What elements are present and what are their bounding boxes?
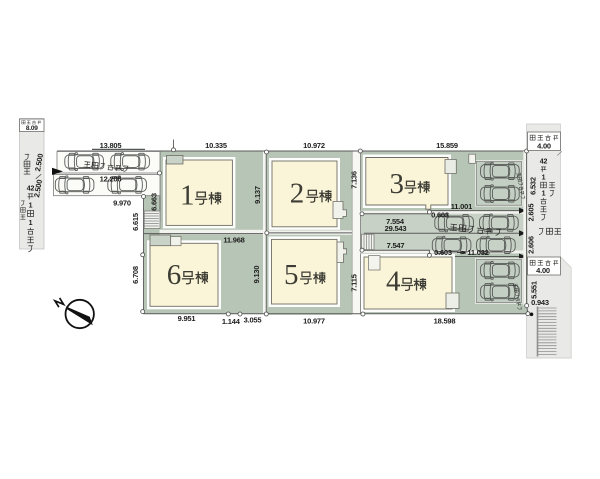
svg-text:15.859: 15.859 [436, 141, 458, 150]
svg-text:1: 1 [180, 180, 195, 212]
svg-text:11.968: 11.968 [223, 235, 244, 244]
svg-text:0.603: 0.603 [434, 248, 452, 257]
svg-text:0.603: 0.603 [431, 210, 449, 219]
svg-text:18.598: 18.598 [434, 317, 456, 326]
svg-text:4.00: 4.00 [536, 266, 550, 275]
svg-text:4.00: 4.00 [537, 142, 551, 151]
svg-text:1: 1 [542, 175, 546, 182]
svg-text:2.605: 2.605 [527, 204, 536, 222]
svg-text:6.663: 6.663 [149, 193, 158, 211]
svg-text:10.335: 10.335 [205, 141, 227, 150]
svg-text:5.551: 5.551 [529, 281, 538, 299]
svg-text:42: 42 [540, 159, 548, 166]
svg-text:7.115: 7.115 [349, 274, 358, 291]
svg-text:5: 5 [284, 259, 299, 291]
svg-text:13.805: 13.805 [100, 141, 122, 150]
svg-text:3: 3 [389, 168, 404, 200]
svg-text:1: 1 [542, 191, 546, 198]
svg-text:11.001: 11.001 [451, 202, 472, 211]
svg-text:2.606: 2.606 [527, 236, 536, 254]
svg-text:12.206: 12.206 [100, 175, 122, 184]
svg-text:8.09: 8.09 [26, 125, 38, 132]
svg-text:6: 6 [167, 259, 182, 291]
svg-text:11.032: 11.032 [467, 248, 488, 257]
svg-text:10.977: 10.977 [303, 317, 325, 326]
svg-text:9.130: 9.130 [252, 266, 261, 284]
svg-text:10.972: 10.972 [303, 141, 325, 150]
svg-text:2: 2 [290, 177, 305, 209]
svg-text:9.137: 9.137 [253, 186, 262, 204]
svg-text:7.547: 7.547 [387, 241, 405, 250]
svg-text:9.970: 9.970 [113, 198, 131, 207]
svg-text:9.951: 9.951 [178, 314, 196, 323]
svg-text:3.055: 3.055 [244, 316, 262, 325]
svg-text:1: 1 [29, 220, 33, 227]
svg-text:1.144: 1.144 [222, 317, 241, 326]
svg-text:29.543: 29.543 [385, 224, 407, 233]
svg-text:6.708: 6.708 [131, 266, 140, 284]
svg-text:6.532: 6.532 [528, 177, 537, 195]
svg-text:1: 1 [29, 203, 33, 210]
svg-text:6.615: 6.615 [131, 213, 140, 231]
svg-text:7.136: 7.136 [349, 171, 358, 189]
svg-text:4: 4 [386, 266, 401, 298]
